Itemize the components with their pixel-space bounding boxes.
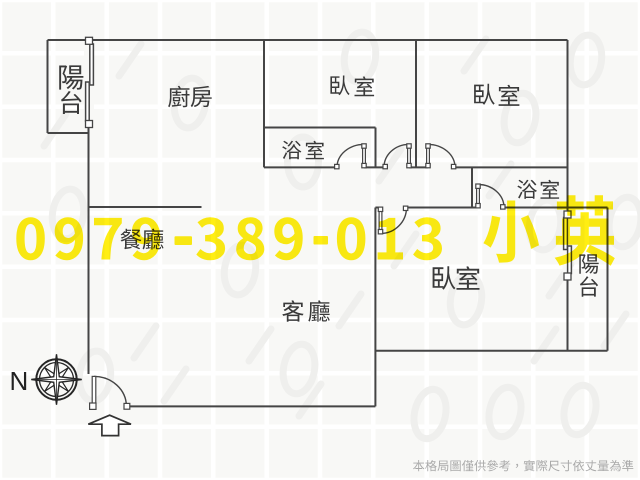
svg-text:N: N — [10, 366, 29, 396]
